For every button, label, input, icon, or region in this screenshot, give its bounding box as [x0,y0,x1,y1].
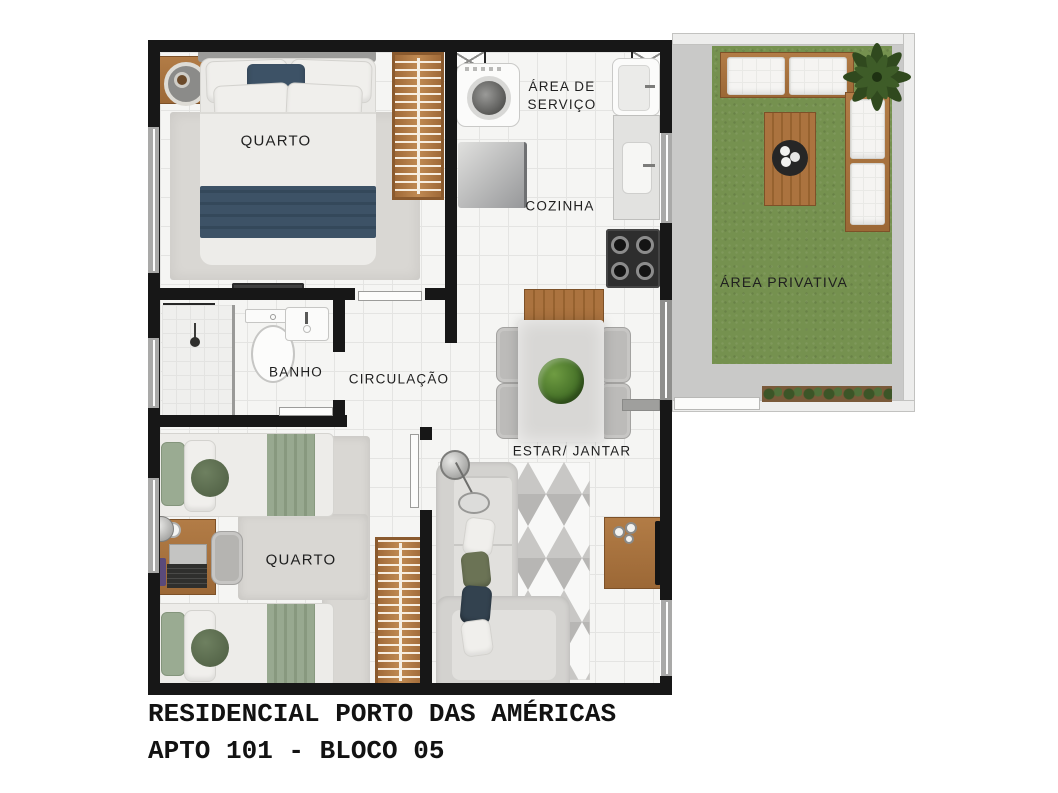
window-bedroom1 [148,127,159,273]
label-bathroom: BANHO [269,365,323,380]
garden-bench-top [720,52,854,98]
fruit-bowl [772,140,808,176]
garden-planter [762,386,892,402]
stove-cooktop [606,229,660,288]
label-service-area: ÁREA DE SERVIÇO [510,78,614,114]
label-bedroom2: QUARTO [266,552,337,569]
bed-pillow-green [161,612,185,676]
wall-bottom [148,683,672,695]
garden-gate-threshold [674,397,760,410]
wall-top [148,40,672,52]
plan-title-line1: RESIDENCIAL PORTO DAS AMÉRICAS [148,701,616,727]
sofa-chaise [436,596,570,694]
faucet-icon [305,312,308,324]
laptop-screen [169,544,207,566]
refrigerator [458,142,527,208]
plan-title-block: RESIDENCIAL PORTO DAS AMÉRICAS APTO 101 … [148,701,616,764]
label-hallway: CIRCULAÇÃO [349,372,450,387]
door-bathroom [279,407,333,416]
sofa-pillow [460,618,495,658]
single-bed [152,433,334,517]
bench-cushion [727,57,785,95]
kitchen-counter [613,115,660,220]
wall-bathroom [333,300,345,352]
shower-head-icon [190,337,200,347]
window-bathroom [148,338,159,408]
tv-stand [604,517,662,589]
door-bedroom1 [358,291,422,301]
window-kitchen [661,133,672,223]
floor-lamp-base [440,450,470,480]
bed-blanket [200,186,376,238]
garden-table [764,112,816,206]
palm-plant-icon [838,38,916,116]
label-kitchen: COZINHA [525,199,594,214]
wall-right [660,676,672,695]
round-cushion [191,629,229,667]
floor-lamp-shade [458,492,490,514]
wall-bedroom1 [425,288,457,300]
sideboard [524,289,604,323]
bed-pillow-green [161,442,185,506]
floor-plan-image: ÁREA PRIVATIVA QUARTO ÁREA DE SERVIÇO CO… [0,0,1058,793]
label-bedroom1: QUARTO [241,133,312,150]
slider-door-mat [622,399,660,411]
window-bedroom2 [148,478,159,573]
single-bed [152,603,334,687]
bed-runner [267,604,315,686]
bedroom1-wardrobe [392,52,444,200]
wall-bathroom [148,415,347,427]
sofa-pillow-olive [460,551,492,590]
bench-cushion [850,163,885,225]
wall-bedroom2 [420,510,432,695]
wall-right [660,400,672,600]
wall-bedroom1 [148,288,355,300]
wall-bedroom2 [420,427,432,440]
table-plant [538,358,584,404]
shower-stall [162,305,235,417]
bed-runner [267,434,315,516]
desk-chair [211,531,243,585]
laptop-keyboard [167,564,207,588]
bedroom1-nightstand [158,56,206,104]
bathroom-sink [285,307,329,341]
label-private-area: ÁREA PRIVATIVA [720,274,848,290]
wall-right [660,223,672,300]
bedroom2-wardrobe [375,537,425,687]
door-bedroom2 [410,434,419,508]
round-cushion [191,459,229,497]
laundry-sink [612,58,660,116]
window-living [661,600,672,676]
label-living-dining: ESTAR/ JANTAR [513,444,632,459]
wall-right [660,40,672,133]
sliding-door-garden [660,300,672,400]
plan-title-line2: APTO 101 - BLOCO 05 [148,738,616,764]
